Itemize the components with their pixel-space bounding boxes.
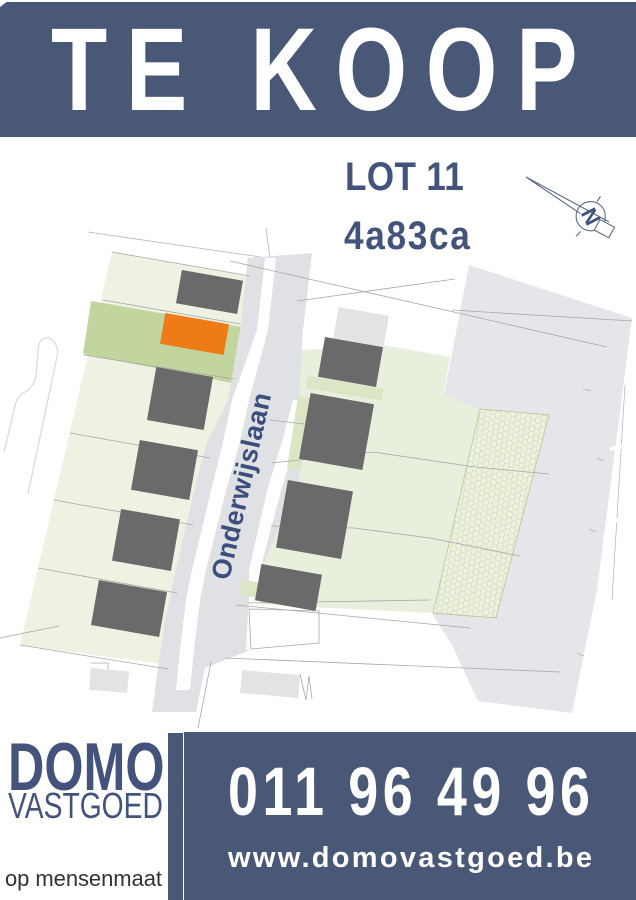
svg-text:4a83ca: 4a83ca bbox=[344, 213, 471, 258]
svg-text:op mensenmaat: op mensenmaat bbox=[5, 866, 162, 891]
svg-text:VASTGOED: VASTGOED bbox=[8, 786, 163, 826]
svg-text:011 96 49 96: 011 96 49 96 bbox=[228, 754, 590, 831]
svg-text:TE KOOP: TE KOOP bbox=[51, 4, 596, 136]
svg-text:www.domovastgoed.be: www.domovastgoed.be bbox=[227, 842, 592, 874]
svg-text:LOT 11: LOT 11 bbox=[345, 154, 464, 199]
